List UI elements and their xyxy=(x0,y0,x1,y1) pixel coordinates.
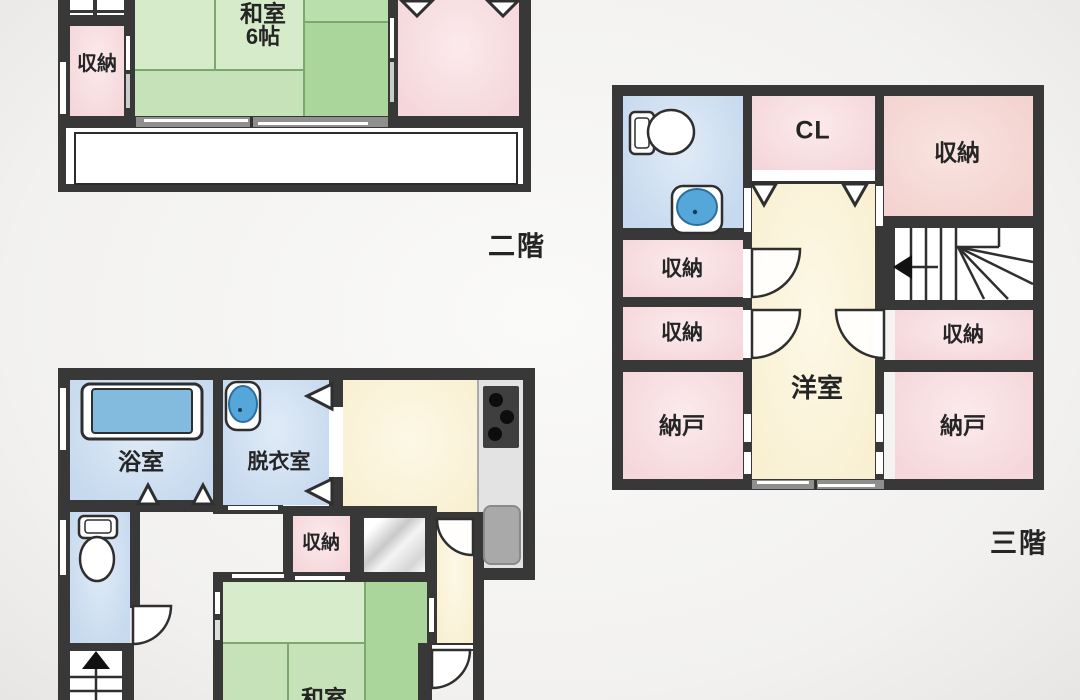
floor-label-2f: 二階 xyxy=(488,234,546,261)
wall xyxy=(884,300,1044,310)
wall xyxy=(473,568,535,580)
stairwell-divider xyxy=(70,10,124,13)
wall xyxy=(884,216,895,310)
window-marker xyxy=(60,388,66,450)
tatami-line xyxy=(214,0,216,70)
sliding-door-marker xyxy=(215,592,220,614)
balcony-wall xyxy=(523,128,531,192)
room-label-washitsu-1f: 和室 xyxy=(301,688,347,700)
room-label-nando-left-3f: 納戸 xyxy=(659,415,705,438)
wall xyxy=(66,500,213,512)
door-opening xyxy=(743,249,752,298)
stairwell-2f xyxy=(70,0,124,16)
sliding-door-marker xyxy=(232,574,284,578)
room-washitsu-1f xyxy=(223,582,365,643)
glass-panel xyxy=(362,516,429,576)
stairs-1f xyxy=(70,651,122,700)
room-kitchen-1f xyxy=(343,380,477,512)
window-tick xyxy=(250,117,253,127)
room-closet-2f xyxy=(398,0,519,116)
hallway-1f xyxy=(437,512,473,643)
sliding-door-marker xyxy=(876,186,883,226)
kitchen-counter xyxy=(477,380,525,568)
sliding-door-marker xyxy=(390,62,394,102)
wall xyxy=(523,368,535,580)
window-marker xyxy=(876,414,883,442)
room-label-storage-left1-3f: 収納 xyxy=(661,259,703,280)
wall xyxy=(884,360,1044,372)
sliding-door-marker xyxy=(744,188,751,232)
room-label-dressing-1f: 脱衣室 xyxy=(248,452,311,473)
window-marker xyxy=(60,520,66,575)
window-marker xyxy=(60,62,66,114)
room-washitsu-2f xyxy=(135,70,305,116)
wall xyxy=(612,85,1044,96)
door-leaf xyxy=(433,512,477,519)
door-arc xyxy=(133,606,171,644)
door-opening xyxy=(743,310,752,358)
room-label-western-3f: 洋室 xyxy=(791,375,843,401)
room-toilet-3f xyxy=(623,96,743,228)
window-tick xyxy=(814,480,817,489)
room-label-storage-2f: 収納 xyxy=(77,54,117,74)
window-pane xyxy=(144,119,248,122)
room-western-3f xyxy=(752,184,875,479)
room-label-nando-right-3f: 納戸 xyxy=(940,415,986,438)
balcony-railing xyxy=(74,132,518,185)
room-label-storage-right-3f: 収納 xyxy=(942,325,984,346)
window-marker xyxy=(744,452,751,474)
wall xyxy=(612,297,743,307)
room-toilet-1f xyxy=(70,512,130,643)
room-label-cl-3f: CL xyxy=(795,119,830,144)
tatami-line xyxy=(135,69,305,71)
window-pane xyxy=(258,122,368,125)
wall xyxy=(418,643,432,700)
tatami-line xyxy=(287,643,289,700)
entrance-threshold xyxy=(430,643,473,651)
wall xyxy=(473,512,484,700)
door-opening xyxy=(875,310,884,358)
room-washitsu-2f xyxy=(305,22,388,116)
sliding-door-marker xyxy=(228,506,278,510)
window-marker xyxy=(876,452,883,474)
floorplan-page: 収納 和室 6帖 二階 CL 収納 収納 収納 収納 納戸 納戸 洋室 三階 浴… xyxy=(0,0,1080,700)
sliding-door-marker xyxy=(215,620,220,640)
wall xyxy=(884,216,1044,228)
window-pane xyxy=(818,484,875,487)
wall xyxy=(329,380,343,407)
window-marker xyxy=(744,414,751,442)
wall xyxy=(130,512,140,608)
sliding-door-marker xyxy=(390,18,394,58)
wall xyxy=(1033,85,1044,490)
stairwell-divider xyxy=(93,0,97,16)
sliding-door-marker xyxy=(126,36,130,70)
balcony-wall xyxy=(58,128,66,192)
room-label-storage-topright-3f: 収納 xyxy=(934,142,980,165)
wall xyxy=(519,0,531,128)
stairs-3f xyxy=(895,228,1033,300)
room-dressing-1f xyxy=(223,380,329,505)
wall xyxy=(612,85,623,490)
room-label-washitsu-size-2f: 6帖 xyxy=(246,26,280,48)
wall xyxy=(283,506,293,582)
sliding-door-marker xyxy=(126,74,130,108)
room-label-storage-1f: 収納 xyxy=(302,534,340,553)
door-opening xyxy=(329,406,343,477)
tatami-line xyxy=(305,21,388,23)
sliding-door-marker xyxy=(429,598,434,632)
wall xyxy=(213,380,223,506)
room-label-bath-1f: 浴室 xyxy=(118,451,164,474)
wall xyxy=(350,512,362,573)
floor-label-3f: 三階 xyxy=(990,531,1048,558)
tatami-line xyxy=(364,582,366,700)
wall xyxy=(612,360,743,372)
door-arc xyxy=(432,650,470,688)
room-washitsu-2f xyxy=(305,0,388,22)
wall xyxy=(122,643,134,700)
wall xyxy=(58,368,535,380)
room-label-storage-left2-3f: 収納 xyxy=(661,323,703,344)
tatami-line xyxy=(303,0,305,116)
tatami-line xyxy=(223,642,365,644)
room-label-washitsu-2f: 和室 xyxy=(240,3,286,26)
room-bath-1f xyxy=(70,380,213,500)
wall xyxy=(612,228,743,240)
window-pane xyxy=(757,481,809,484)
wall xyxy=(58,15,135,26)
sliding-door-marker xyxy=(295,576,345,580)
balcony-wall xyxy=(58,184,531,192)
